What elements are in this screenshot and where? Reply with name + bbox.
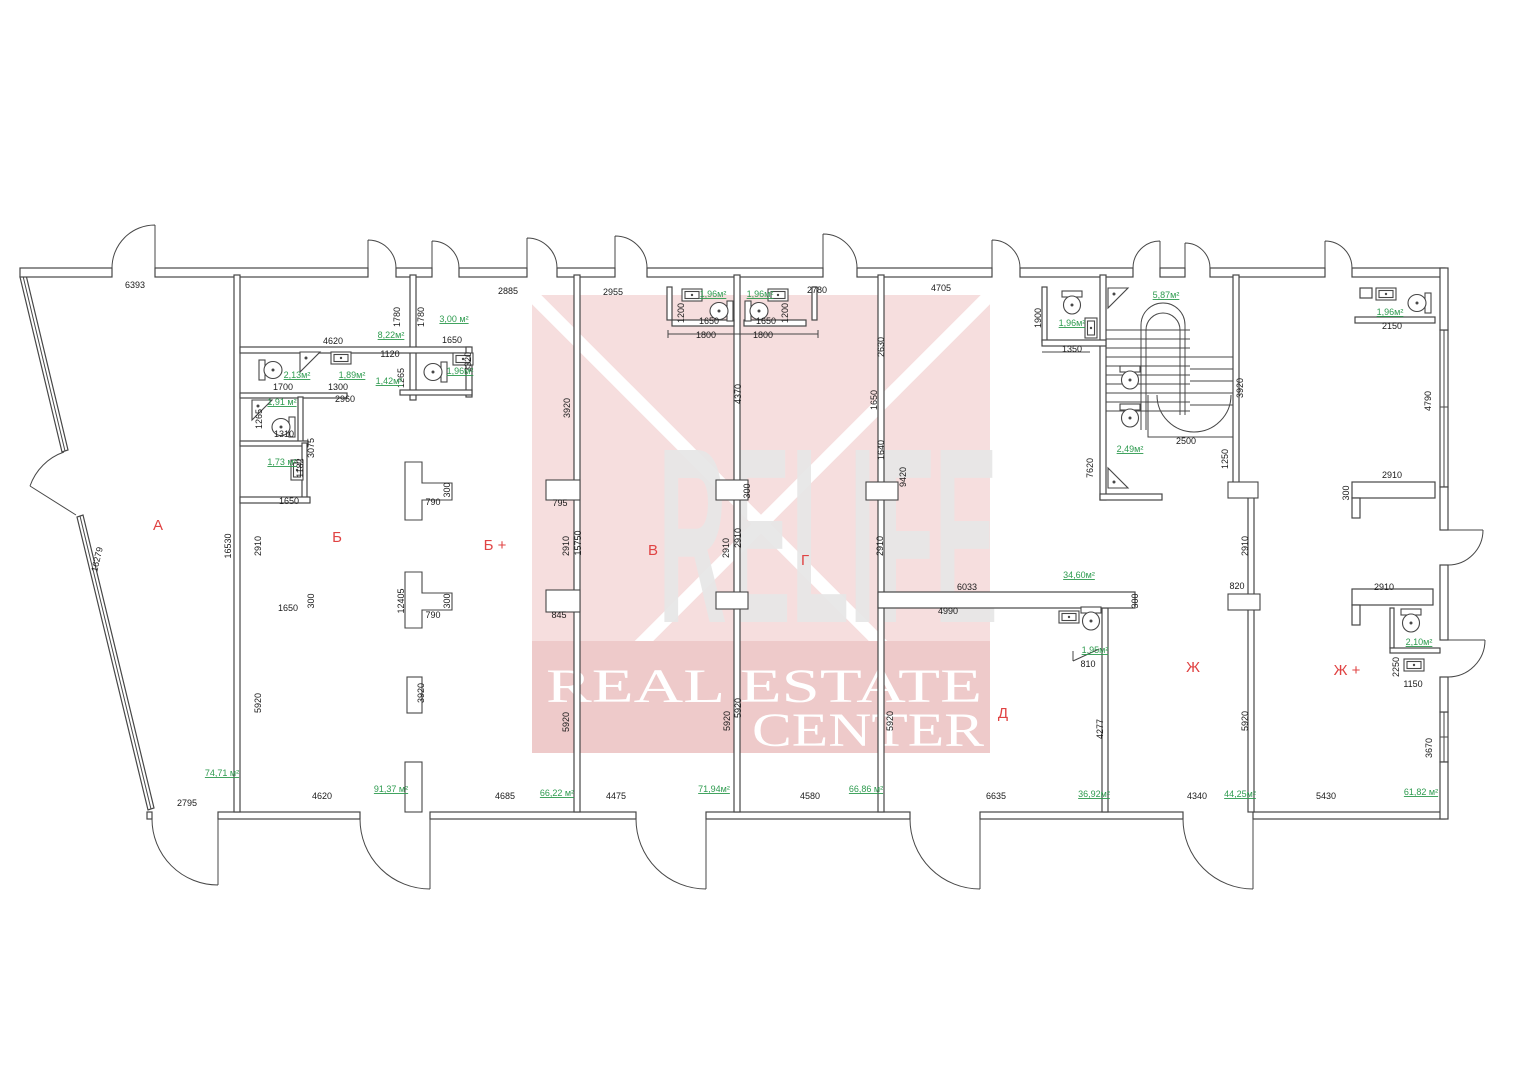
dimension-label: 5920 — [1240, 711, 1250, 731]
dimension-label: 810 — [1080, 659, 1095, 669]
dimension-label: 4790 — [1423, 391, 1433, 411]
sink-icon — [331, 352, 351, 364]
dimension-label: 4277 — [1095, 719, 1105, 739]
dimension-label: 1640 — [876, 440, 886, 460]
dimension-label: 1780 — [416, 307, 426, 327]
sink-icon — [1376, 288, 1396, 300]
room-label: Б + — [484, 537, 507, 554]
dimension-label: 2910 — [721, 538, 731, 558]
dimension-label: 1250 — [1220, 449, 1230, 469]
area-label: 1,89м² — [339, 370, 366, 380]
area-label: 1,42м² — [376, 376, 403, 386]
dimension-label: 4580 — [800, 791, 820, 801]
dimension-label: 2910 — [561, 536, 571, 556]
dimension-label: 3920 — [1235, 378, 1245, 398]
area-label: 74,71 м² — [205, 768, 239, 778]
dimension-label: 2910 — [1240, 536, 1250, 556]
dimension-label: 2910 — [1374, 582, 1394, 592]
dimension-label: 4370 — [733, 384, 743, 404]
dimension-label: 5920 — [561, 712, 571, 732]
dimension-label: 1650 — [699, 316, 719, 326]
dimension-label: 1800 — [753, 330, 773, 340]
dimension-label: 820 — [1229, 581, 1244, 591]
area-label: 1,96м² — [1059, 318, 1086, 328]
area-label: 2,49м² — [1117, 444, 1144, 454]
area-label: 2,13м² — [284, 370, 311, 380]
area-label: 3,00 м² — [439, 314, 468, 324]
area-label: 1,96м² — [700, 289, 727, 299]
dimension-label: 1265 — [254, 409, 264, 429]
dimension-label: 300 — [1130, 593, 1140, 608]
dimension-label: 5920 — [253, 693, 263, 713]
dimension-label: 845 — [551, 610, 566, 620]
toilet-icon — [259, 360, 282, 380]
area-label: 61,82 м² — [1404, 787, 1438, 797]
dimension-label: 5430 — [1316, 791, 1336, 801]
dimension-label: 790 — [425, 497, 440, 507]
area-label: 1,95м² — [1082, 645, 1109, 655]
dimension-label: 3920 — [416, 683, 426, 703]
toilet-icon — [1081, 607, 1101, 630]
watermark-line2: CENTER — [752, 704, 984, 757]
room-label: В — [648, 542, 658, 559]
sink-icon — [1404, 659, 1424, 671]
corner-shower-icon — [1108, 468, 1128, 488]
area-label: 91,37 м² — [374, 784, 408, 794]
toilet-icon — [1120, 366, 1140, 389]
floorplan-page: RELIFE REAL ESTATE CENTER — [0, 0, 1529, 1080]
dimension-label: 2910 — [875, 536, 885, 556]
dimension-label: 1650 — [869, 390, 879, 410]
dimension-label: 300 — [442, 482, 452, 497]
dimension-label: 1200 — [676, 303, 686, 323]
area-label: 44,25м² — [1224, 789, 1256, 799]
toilet-icon — [1408, 293, 1431, 313]
area-label: 5,87м² — [1153, 290, 1180, 300]
area-label: 34,60м² — [1063, 570, 1095, 580]
dimension-label: 7620 — [1085, 458, 1095, 478]
area-label: 1,96м² — [447, 366, 474, 376]
dimension-label: 1650 — [278, 603, 298, 613]
dimension-label: 795 — [552, 498, 567, 508]
dimension-label: 1650 — [442, 335, 462, 345]
room-label: Б — [332, 529, 342, 546]
dimension-label: 2910 — [733, 528, 743, 548]
dimension-label: 2500 — [1176, 436, 1196, 446]
room-label: А — [153, 517, 163, 534]
dimension-label: 2885 — [498, 286, 518, 296]
dimension-label: 300 — [1341, 485, 1351, 500]
toilet-icon — [1120, 404, 1140, 427]
dimension-label: 5920 — [722, 711, 732, 731]
dimension-label: 4620 — [323, 336, 343, 346]
floorplan-canvas: RELIFE REAL ESTATE CENTER — [0, 0, 1529, 1080]
dimension-label: 1150 — [1403, 679, 1422, 689]
area-label: 1,96м² — [1377, 307, 1404, 317]
area-label: 2,10м² — [1406, 637, 1433, 647]
dimension-label: 2250 — [1391, 657, 1401, 677]
toilet-icon — [1401, 609, 1421, 632]
corner-shower-icon — [1108, 288, 1128, 308]
dimension-label: 300 — [742, 483, 752, 498]
watermark: RELIFE REAL ESTATE CENTER — [532, 295, 998, 757]
dimension-label: 6635 — [986, 791, 1006, 801]
dimension-label: 4620 — [312, 791, 332, 801]
toilet-icon — [424, 362, 447, 382]
dimension-label: 4705 — [931, 283, 951, 293]
dimension-label: 1200 — [780, 303, 790, 323]
room-label: Д — [998, 705, 1008, 722]
dimension-label: 1300 — [328, 382, 348, 392]
dimension-label: 5920 — [885, 711, 895, 731]
dimension-label: 9420 — [898, 467, 908, 487]
area-label: 1,96м² — [747, 289, 774, 299]
dimension-label: 16530 — [223, 533, 233, 558]
room-label: Г — [801, 552, 809, 569]
dimension-label: 6393 — [125, 280, 145, 290]
dimension-label: 1310 — [274, 429, 294, 439]
area-label: 36,92м² — [1078, 789, 1110, 799]
room-label: Ж + — [1334, 662, 1361, 679]
room-label: Ж — [1186, 659, 1200, 676]
dimension-label: 4685 — [495, 791, 515, 801]
area-label: 66,22 м² — [540, 788, 574, 798]
dimension-label: 2630 — [876, 337, 886, 357]
dimension-label: 300 — [442, 593, 452, 608]
dimension-label: 3920 — [562, 398, 572, 418]
dimension-label: 2150 — [1382, 321, 1402, 331]
dimension-label: 790 — [425, 610, 440, 620]
dimension-label: 1650 — [756, 316, 776, 326]
dimension-label: 1800 — [696, 330, 716, 340]
dimension-label: 6033 — [957, 582, 977, 592]
watermark-brand: RELIFE — [658, 396, 998, 675]
dimension-label: 2795 — [177, 798, 197, 808]
sink-icon — [1085, 318, 1097, 338]
area-label: 66,86 м² — [849, 784, 883, 794]
dimension-label: 2910 — [1382, 470, 1402, 480]
dimension-label: 5920 — [733, 698, 743, 718]
dimension-label: 15750 — [573, 530, 583, 555]
dimension-label: 1650 — [279, 496, 299, 506]
dimension-label: 4340 — [1187, 791, 1207, 801]
dimension-label: 1350 — [1062, 344, 1082, 354]
dimension-label: 4990 — [938, 606, 958, 616]
area-label: 1,91 м² — [267, 397, 296, 407]
dimension-label: 2960 — [335, 394, 355, 404]
sink-icon — [1059, 611, 1079, 623]
dimension-label: 12405 — [396, 588, 406, 613]
dimension-label: 2780 — [807, 285, 827, 295]
dimension-label: 3670 — [1424, 738, 1434, 758]
area-label: 1,73 м² — [267, 457, 296, 467]
dimension-label: 300 — [306, 593, 316, 608]
dimension-label: 1120 — [380, 349, 399, 359]
dimension-label: 4475 — [606, 791, 626, 801]
area-label: 8,22м² — [378, 330, 405, 340]
dimension-label: 1900 — [1033, 308, 1043, 328]
corner-sink-icon — [300, 352, 320, 372]
dimension-label: 1780 — [392, 307, 402, 327]
dimension-label: 3075 — [306, 438, 316, 458]
dimension-label: 2910 — [253, 536, 263, 556]
toilet-icon — [1062, 291, 1082, 314]
dimension-label: 2955 — [603, 287, 623, 297]
area-label: 71,94м² — [698, 784, 730, 794]
dimension-label: 1700 — [273, 382, 293, 392]
